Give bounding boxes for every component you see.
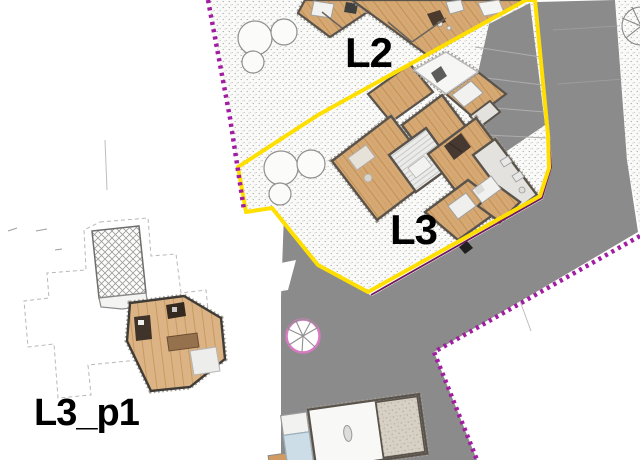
terrace-crosshatch	[92, 226, 146, 298]
gravel-terrace	[376, 396, 425, 457]
site-plan-drawing: L2 L3 L3_p1	[0, 0, 640, 460]
tree-icon	[271, 19, 297, 45]
tree-icon	[238, 21, 272, 55]
tree-icon	[264, 151, 298, 185]
street-tree-icon	[287, 320, 320, 353]
sofa	[190, 347, 220, 375]
tree-icon	[297, 150, 325, 178]
tree-icon	[269, 183, 291, 205]
tree-icon	[242, 51, 264, 73]
site-plan-canvas: L2 L3 L3_p1	[0, 0, 640, 460]
label-detail-l3p1: L3_p1	[34, 392, 140, 434]
label-parcel-l2: L2	[345, 29, 392, 76]
desk	[134, 315, 152, 341]
label-parcel-l3: L3	[390, 206, 437, 253]
